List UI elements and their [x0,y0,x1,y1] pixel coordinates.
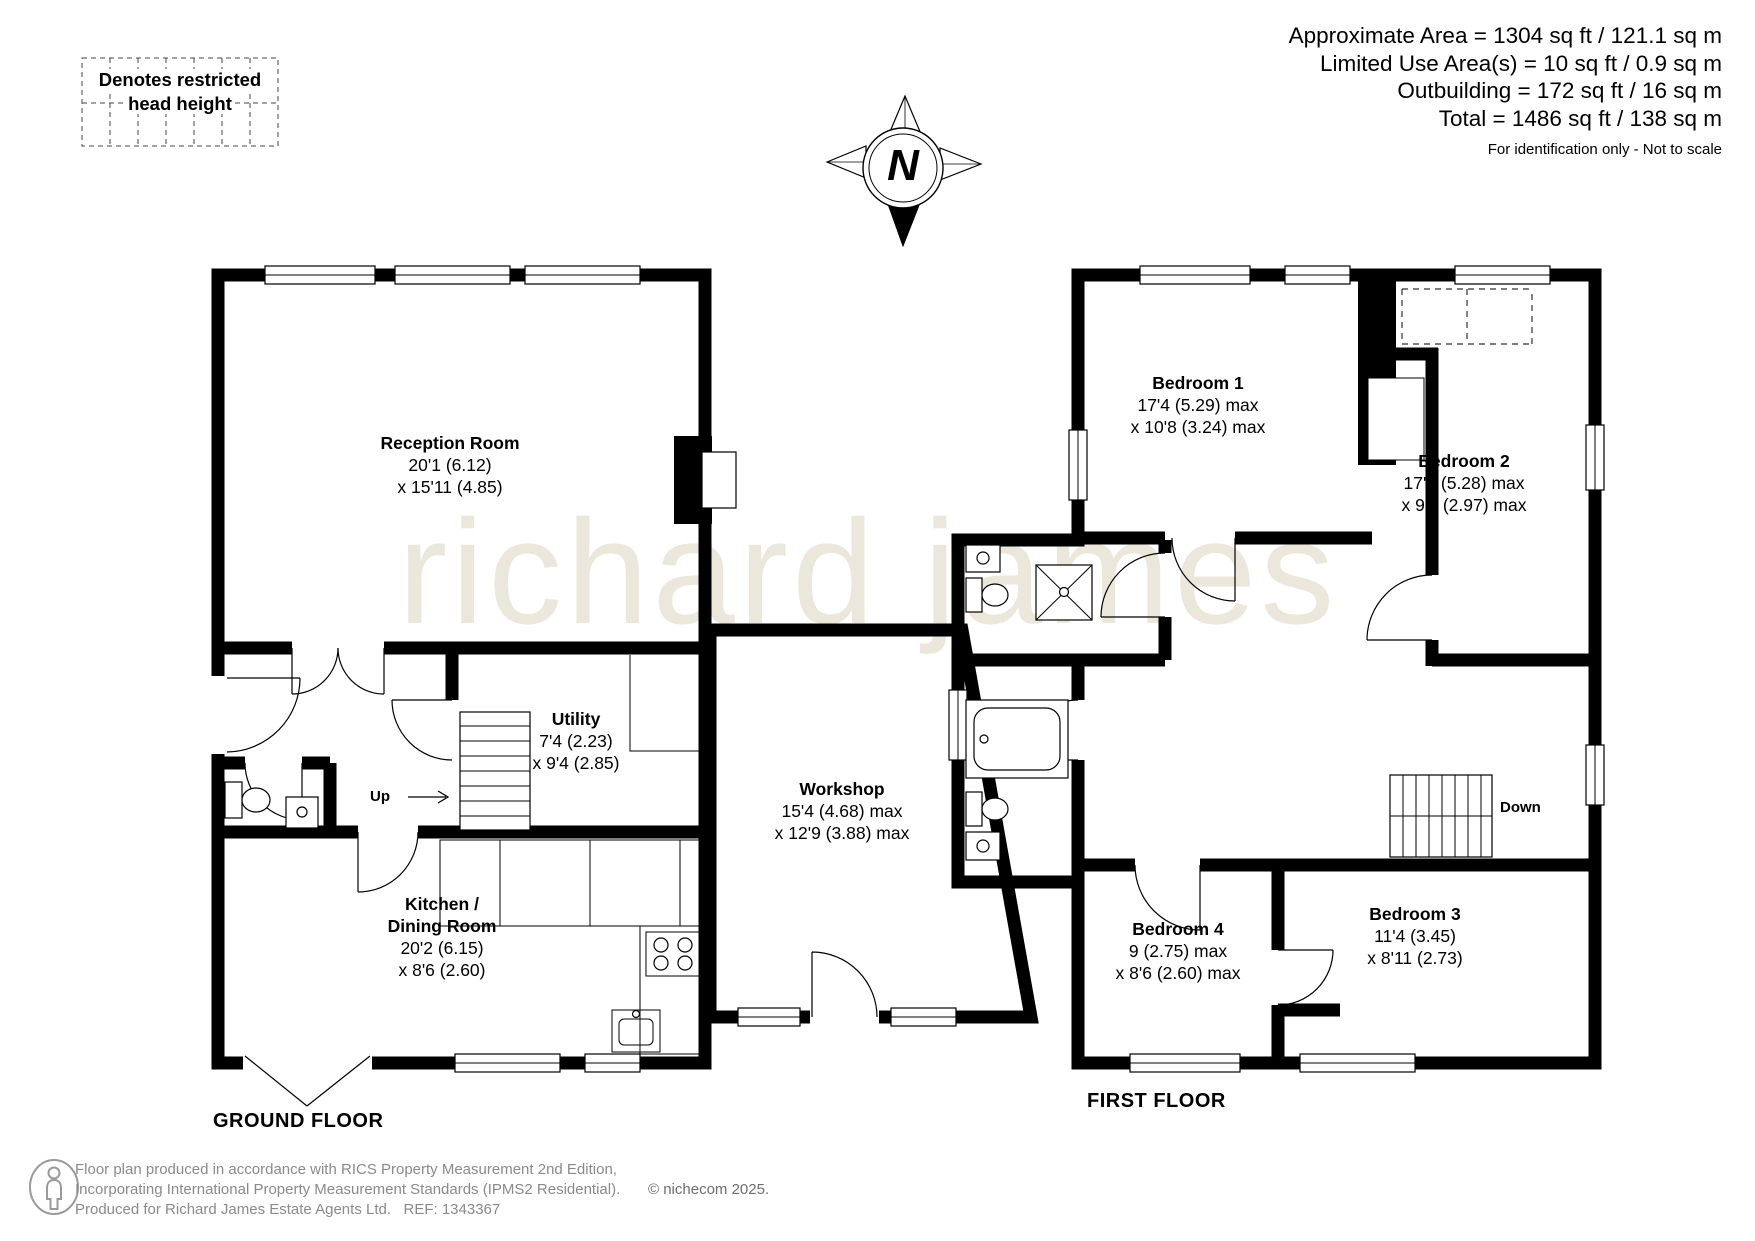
up-label: Up [370,788,390,805]
footer-line2: Incorporating International Property Mea… [75,1180,620,1199]
outbuilding-area: Outbuilding = 172 sq ft / 16 sq m [1289,77,1722,105]
room-label-bedroom2: Bedroom 2 17'4 (5.28) max x 9'5 (2.97) m… [1402,450,1527,516]
first-floor-windows [949,266,1604,1072]
room-label-utility: Utility 7'4 (2.23) x 9'4 (2.85) [533,708,620,774]
wc-toilet [242,788,270,812]
footer-line3: Produced for Richard James Estate Agents… [75,1200,500,1219]
hob [646,932,700,976]
up-arrow [408,791,448,803]
room-label-reception: Reception Room 20'1 (6.12) x 15'11 (4.85… [380,432,519,498]
compass-north-label: N [887,141,919,191]
restricted-height-legend: Denotes restricted head height [96,68,264,116]
total-area: Total = 1486 sq ft / 138 sq m [1289,105,1722,133]
scale-disclaimer: For identification only - Not to scale [1289,141,1722,158]
wc-cistern [225,782,242,818]
utility-worktop [630,655,700,751]
alcove [1368,378,1424,460]
ground-floor-windows [209,266,956,1072]
toilet [982,584,1008,606]
limited-use-area: Limited Use Area(s) = 10 sq ft / 0.9 sq … [1289,50,1722,78]
restricted-height-area [1402,289,1532,344]
room-label-workshop: Workshop 15'4 (4.68) max x 12'9 (3.88) m… [775,778,910,844]
first-floor-walls [958,275,1595,1063]
ground-floor-title: GROUND FLOOR [213,1110,383,1133]
footer-line1: Floor plan produced in accordance with R… [75,1160,617,1179]
room-label-bedroom4: Bedroom 4 9 (2.75) max x 8'6 (2.60) max [1116,918,1241,984]
floor-plan-drawing [0,0,1755,1241]
ground-floor-walls [218,275,1031,1063]
legend-line1: Denotes restricted [96,69,264,90]
down-label: Down [1500,799,1541,816]
toilet-cistern [966,578,982,612]
area-summary: Approximate Area = 1304 sq ft / 121.1 sq… [1289,22,1722,158]
approximate-area: Approximate Area = 1304 sq ft / 121.1 sq… [1289,22,1722,50]
room-label-bedroom3: Bedroom 3 11'4 (3.45) x 8'11 (2.73) [1367,903,1462,969]
first-floor-title: FIRST FLOOR [1087,1090,1226,1113]
ground-stairs [408,712,530,830]
room-label-bedroom1: Bedroom 1 17'4 (5.29) max x 10'8 (3.24) … [1131,372,1266,438]
first-stairs [1390,775,1492,857]
copyright: © nichecom 2025. [648,1180,769,1199]
footer: Floor plan produced in accordance with R… [0,1150,1755,1241]
legend-line2: head height [125,93,235,114]
floorplan-page: richard james [0,0,1755,1241]
room-label-kitchen: Kitchen / Dining Room 20'2 (6.15) x 8'6 … [388,893,497,981]
